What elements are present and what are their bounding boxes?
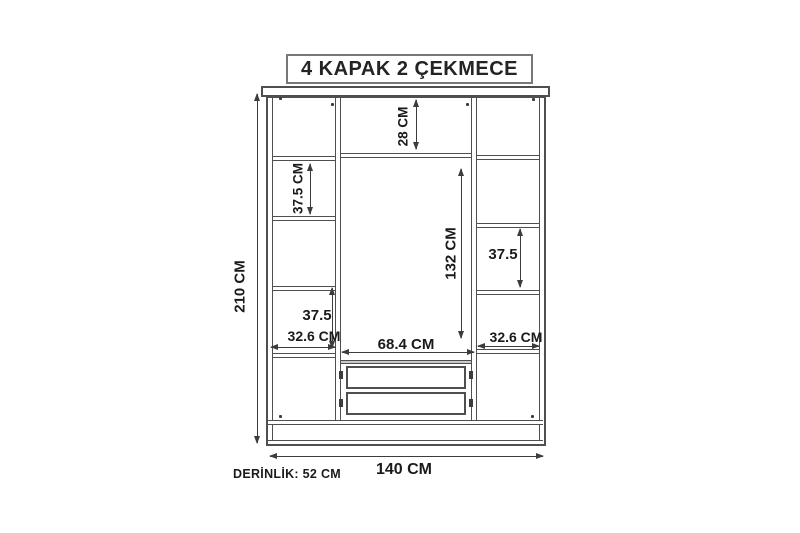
- bottom-interior-panel: [268, 420, 543, 425]
- right-shelf-1: [477, 155, 539, 160]
- hinge-mark: [339, 371, 343, 379]
- center-height-label: 132 CM: [443, 222, 460, 286]
- overall-width-label: 140 CM: [369, 461, 439, 479]
- right-shelf-3: [477, 290, 539, 295]
- marker-dot: [279, 415, 282, 418]
- left-shelf-dimension-line: [310, 164, 311, 214]
- right-shelf-4: [477, 349, 539, 354]
- center-height-dimension-line: [461, 169, 462, 338]
- right-width-label: 32.6 CM: [479, 329, 553, 345]
- left-lower-label: 37.5: [294, 307, 340, 324]
- hinge-mark: [469, 371, 473, 379]
- drawer-upper: [346, 366, 466, 389]
- drawer-lower: [346, 392, 466, 415]
- diagram-title: 4 KAPAK 2 ÇEKMECE: [301, 58, 518, 81]
- top-shelf-label: 28 CM: [396, 99, 411, 155]
- left-shelf-4: [273, 353, 335, 358]
- top-shelf-dimension-line: [416, 100, 417, 149]
- drawer-top-panel: [341, 360, 471, 364]
- marker-dot: [279, 97, 282, 100]
- right-shelf-2: [477, 223, 539, 228]
- overall-height-dimension-line: [257, 94, 258, 443]
- right-width-dimension-line: [478, 346, 539, 347]
- left-width-label: 32.6 CM: [277, 328, 351, 344]
- overall-width-dimension-line: [270, 456, 543, 457]
- right-side-panel-line: [539, 98, 540, 441]
- left-shelf-label: 37.5 CM: [291, 157, 306, 221]
- plinth-top-line: [268, 440, 543, 441]
- wardrobe-dimension-diagram: 4 KAPAK 2 ÇEKMECE 210 CM 28 CM 37.5 CM: [0, 0, 800, 533]
- left-side-panel-line: [272, 98, 273, 441]
- overall-height-label: 210 CM: [232, 252, 249, 322]
- right-shelf-label: 37.5: [480, 246, 526, 263]
- marker-dot: [531, 415, 534, 418]
- left-width-dimension-line: [271, 347, 335, 348]
- marker-dot: [331, 103, 334, 106]
- marker-dot: [532, 98, 535, 101]
- hinge-mark: [339, 399, 343, 407]
- marker-dot: [466, 103, 469, 106]
- title-box: 4 KAPAK 2 ÇEKMECE: [286, 54, 533, 84]
- left-shelf-3: [273, 286, 335, 291]
- center-width-label: 68.4 CM: [366, 336, 446, 353]
- depth-label: DERİNLİK: 52 CM: [233, 467, 341, 482]
- hinge-mark: [469, 399, 473, 407]
